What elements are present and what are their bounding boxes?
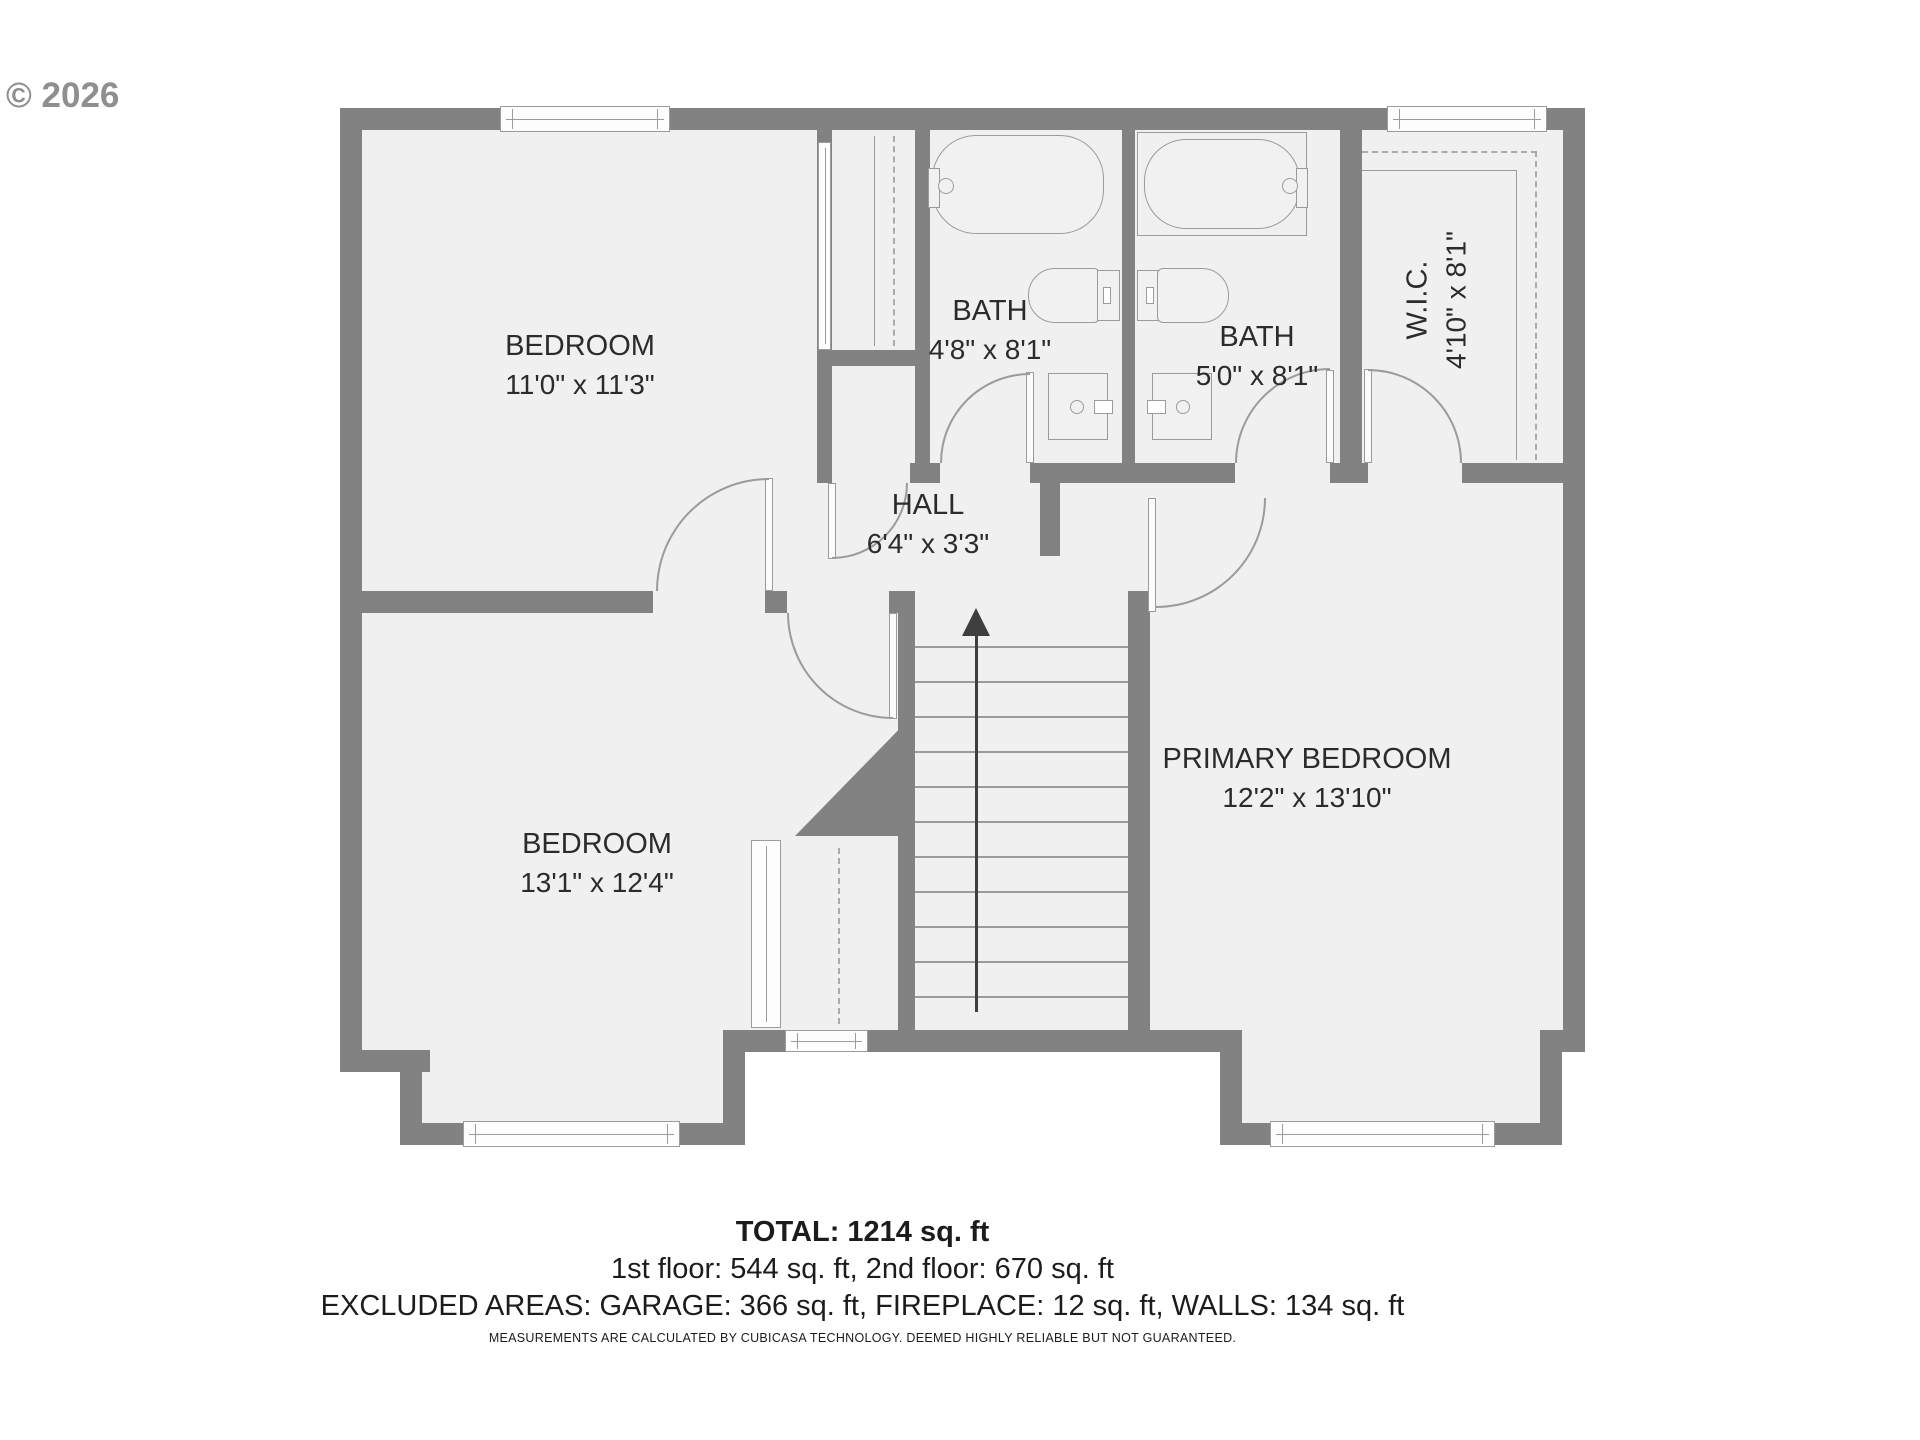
toilet-flush-button [1146, 287, 1154, 304]
door-opening [1368, 463, 1462, 483]
room-dims: 5'0" x 8'1" [1196, 357, 1318, 395]
room-label-hall: HALL 6'4" x 3'3" [867, 486, 989, 563]
window [1387, 106, 1547, 132]
closet-rail-dashed [893, 136, 895, 346]
room-name: W.I.C. [1399, 231, 1438, 369]
room-name: BEDROOM [505, 327, 655, 366]
stairs-up-arrow-icon [962, 608, 990, 636]
room-dims: 6'4" x 3'3" [867, 525, 989, 563]
wall [817, 350, 930, 366]
door-opening [787, 591, 889, 613]
room-name: BATH [1196, 318, 1318, 357]
sink-faucet [1094, 400, 1113, 414]
door-opening [940, 463, 1030, 483]
wall [1122, 130, 1135, 463]
room-label-bedroom-top: BEDROOM 11'0" x 11'3" [505, 327, 655, 404]
room-name: HALL [867, 486, 989, 525]
wall [340, 108, 362, 1072]
room-label-bedroom-bottom: BEDROOM 13'1" x 12'4" [520, 825, 674, 902]
door-leaf [1148, 498, 1156, 612]
wall-diagonal-under-stairs [795, 715, 913, 836]
excluded-areas-text: EXCLUDED AREAS: GARAGE: 366 sq. ft, FIRE… [300, 1290, 1425, 1323]
bathtub [1144, 139, 1300, 229]
window [463, 1121, 680, 1147]
room-label-bath-left: BATH 4'8" x 8'1" [929, 292, 1051, 369]
window [500, 106, 670, 132]
floor-areas-text: 1st floor: 544 sq. ft, 2nd floor: 670 sq… [300, 1253, 1425, 1286]
window [785, 1030, 868, 1052]
bathtub-faucet-spout [938, 178, 954, 194]
door-opening [1235, 463, 1330, 483]
closet-rail-dashed [838, 848, 840, 1024]
sink-faucet [1147, 400, 1166, 414]
room-dims: 4'8" x 8'1" [929, 331, 1051, 369]
closet-sliding-door [751, 840, 781, 1028]
area-summary: TOTAL: 1214 sq. ft 1st floor: 544 sq. ft… [300, 1216, 1425, 1345]
room-name: BEDROOM [520, 825, 674, 864]
disclaimer-text: MEASUREMENTS ARE CALCULATED BY CUBICASA … [300, 1331, 1425, 1345]
door-opening [653, 591, 765, 613]
wall [1540, 1030, 1585, 1052]
room-label-bath-right: BATH 5'0" x 8'1" [1196, 318, 1318, 395]
wall [1040, 483, 1060, 556]
wall [1563, 108, 1585, 1052]
window [1270, 1121, 1495, 1147]
total-area-text: TOTAL: 1214 sq. ft [300, 1216, 1425, 1249]
room-dims: 13'1" x 12'4" [520, 864, 674, 902]
copyright-watermark: © 2026 [6, 76, 119, 116]
room-dims: 4'10" x 8'1" [1438, 231, 1476, 369]
wall [1128, 591, 1150, 1030]
sink-drain [1070, 400, 1084, 414]
wall [1340, 130, 1362, 463]
floor-plan-page: © 2026 [0, 0, 1920, 1440]
closet-sliding-door [818, 142, 831, 350]
bathtub-faucet-spout [1282, 178, 1298, 194]
stairs-treads [915, 646, 1128, 1030]
bathtub-faucet [1296, 168, 1308, 208]
bathtub [932, 135, 1104, 234]
toilet-bowl [1157, 268, 1229, 323]
toilet-flush-button [1103, 287, 1111, 304]
closet-shelf-line [874, 136, 875, 346]
room-dims: 11'0" x 11'3" [505, 366, 655, 404]
room-dims: 12'2" x 13'10" [1163, 779, 1452, 817]
room-label-primary-bedroom: PRIMARY BEDROOM 12'2" x 13'10" [1163, 740, 1452, 817]
room-label-wic: W.I.C. 4'10" x 8'1" [1399, 231, 1476, 369]
sink-drain [1176, 400, 1190, 414]
room-name: BATH [929, 292, 1051, 331]
stairs-direction-line [975, 634, 978, 1012]
room-name: PRIMARY BEDROOM [1163, 740, 1452, 779]
wall [340, 1050, 430, 1072]
door-opening [832, 463, 910, 483]
